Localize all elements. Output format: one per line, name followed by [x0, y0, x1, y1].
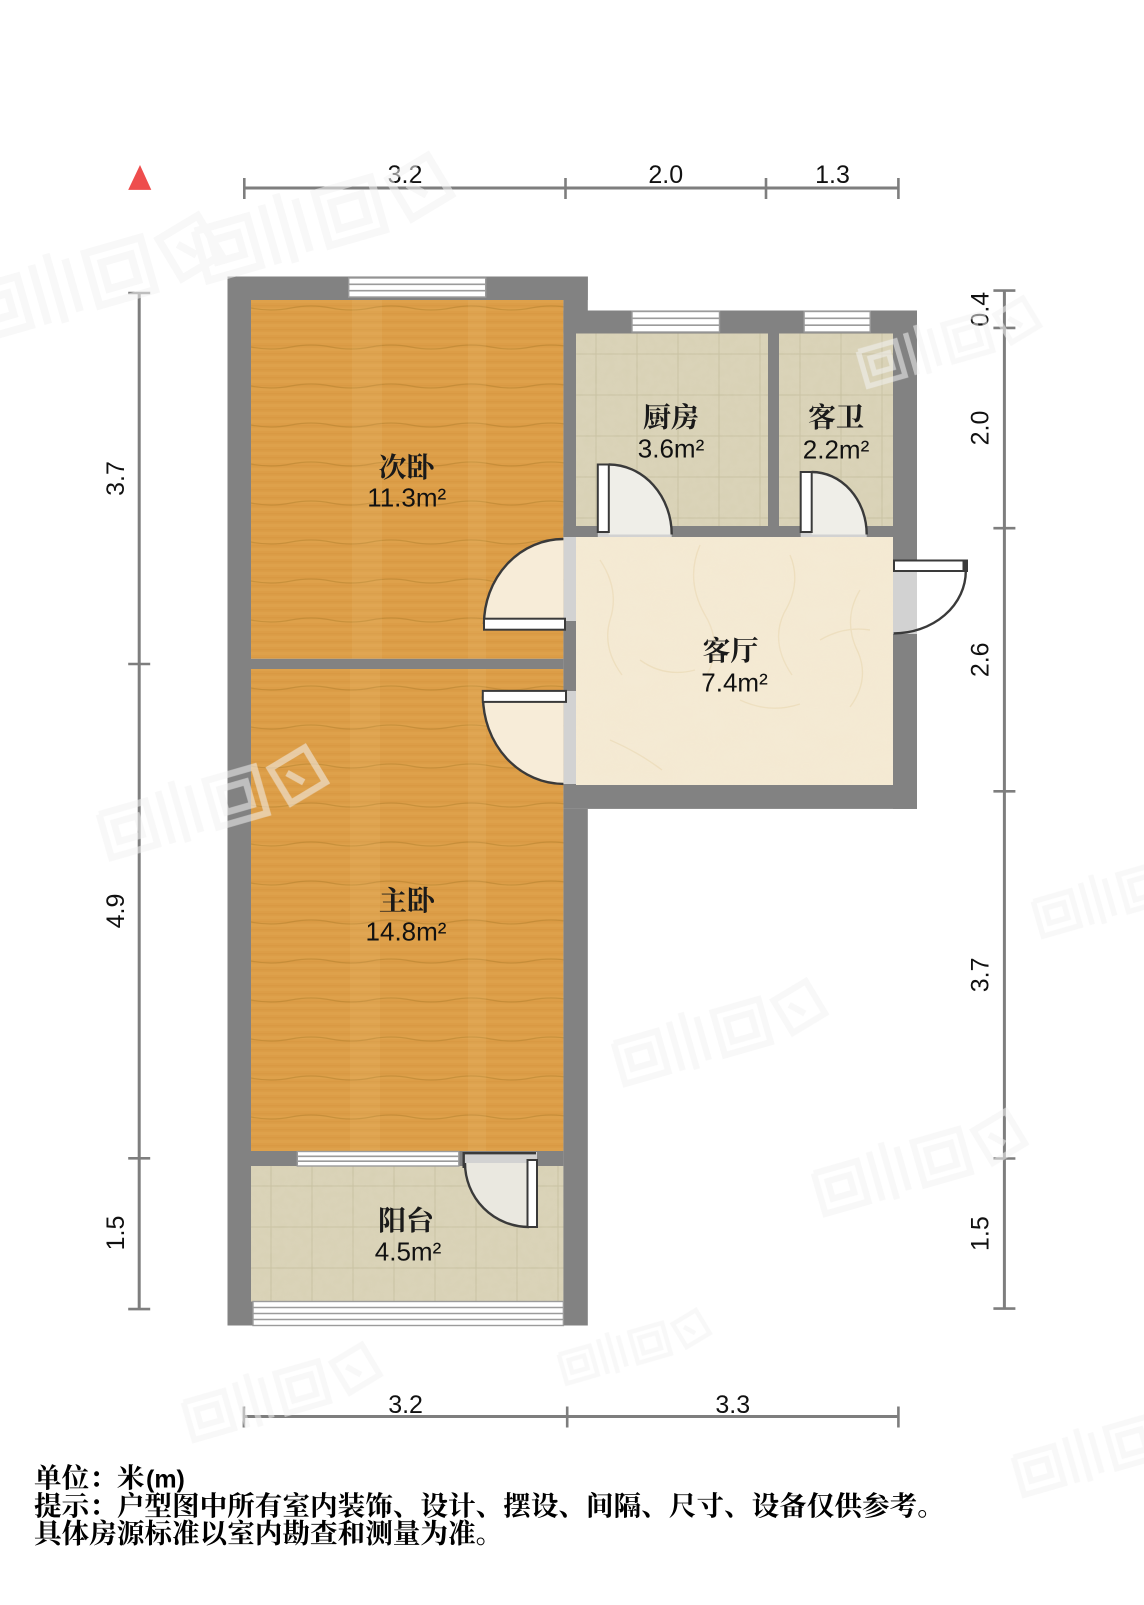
svg-text:3.6m²: 3.6m² [638, 434, 705, 464]
svg-text:3.2: 3.2 [388, 1391, 423, 1419]
svg-text:3.3: 3.3 [715, 1391, 750, 1419]
svg-text:2.0: 2.0 [967, 411, 995, 446]
svg-text:3.7: 3.7 [967, 958, 995, 993]
svg-text:0.4: 0.4 [967, 292, 995, 327]
svg-text:(m): (m) [146, 1466, 185, 1494]
svg-text:1.3: 1.3 [815, 161, 850, 189]
svg-text:1.5: 1.5 [967, 1216, 995, 1251]
svg-text:3.7: 3.7 [102, 461, 130, 496]
svg-text:14.8m²: 14.8m² [366, 917, 447, 947]
svg-text:2.6: 2.6 [967, 642, 995, 677]
svg-text:1.5: 1.5 [102, 1216, 130, 1251]
svg-text:2.2m²: 2.2m² [803, 435, 870, 465]
svg-text:7.4m²: 7.4m² [701, 668, 768, 698]
svg-text:11.3m²: 11.3m² [367, 483, 446, 513]
svg-text:2.0: 2.0 [648, 161, 683, 189]
svg-text:4.9: 4.9 [102, 894, 130, 929]
svg-text:4.5m²: 4.5m² [375, 1237, 442, 1267]
